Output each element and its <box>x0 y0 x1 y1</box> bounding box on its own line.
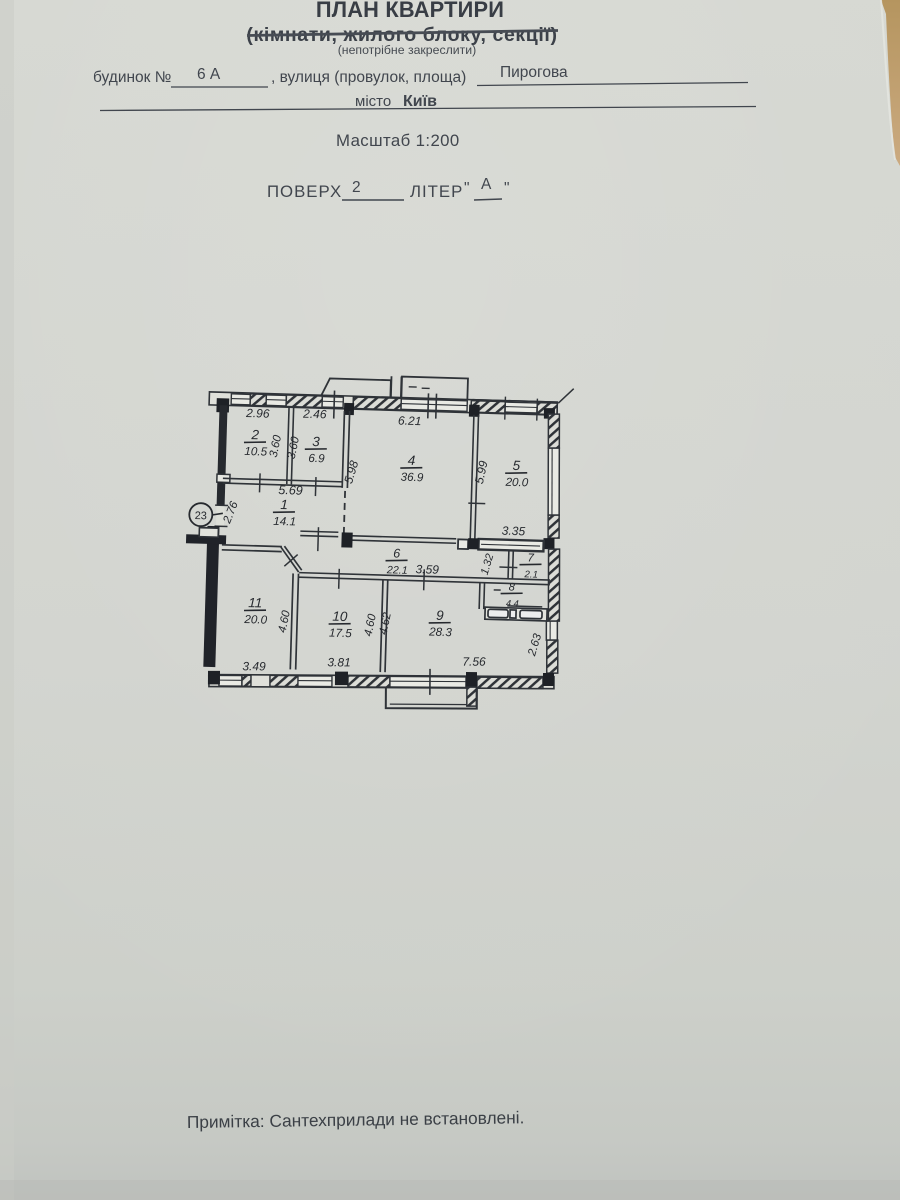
svg-text:20.0: 20.0 <box>504 476 529 490</box>
svg-text:Пирогова: Пирогова <box>500 64 568 81</box>
svg-text:2.46: 2.46 <box>302 407 327 422</box>
svg-text:": " <box>464 180 470 197</box>
svg-text:4: 4 <box>408 453 416 468</box>
svg-text:ЛІТЕР: ЛІТЕР <box>410 182 463 201</box>
svg-text:, вулиця (провулок, площа): , вулиця (провулок, площа) <box>271 69 466 86</box>
svg-text:будинок №: будинок № <box>93 69 172 86</box>
svg-text:5.69: 5.69 <box>278 483 303 498</box>
svg-text:ПОВЕРХ: ПОВЕРХ <box>267 182 342 201</box>
svg-text:2: 2 <box>250 427 259 442</box>
svg-text:": " <box>504 180 510 197</box>
svg-text:4.4: 4.4 <box>506 598 519 608</box>
svg-text:3.59: 3.59 <box>415 562 439 577</box>
svg-text:6: 6 <box>393 546 400 560</box>
svg-text:9: 9 <box>436 608 444 623</box>
svg-text:10: 10 <box>332 609 348 624</box>
svg-text:2.96: 2.96 <box>245 406 270 421</box>
svg-text:7: 7 <box>527 552 534 564</box>
svg-text:3: 3 <box>312 434 320 449</box>
svg-text:3.35: 3.35 <box>502 524 526 539</box>
svg-text:6.21: 6.21 <box>398 413 422 428</box>
svg-text:2.1: 2.1 <box>523 569 538 580</box>
svg-text:10.5: 10.5 <box>244 445 268 459</box>
svg-text:11: 11 <box>248 595 262 610</box>
svg-text:3.49: 3.49 <box>242 659 266 673</box>
svg-text:3.81: 3.81 <box>327 655 350 669</box>
svg-text:22.1: 22.1 <box>386 564 408 577</box>
svg-text:28.3: 28.3 <box>428 625 453 639</box>
svg-text:(непотрібне закреслити): (непотрібне закреслити) <box>338 43 477 57</box>
svg-text:Київ: Київ <box>403 93 437 110</box>
svg-text:2: 2 <box>352 179 361 196</box>
svg-text:6 А: 6 А <box>197 66 221 83</box>
svg-text:місто: місто <box>355 93 391 110</box>
svg-text:А: А <box>481 176 492 193</box>
svg-text:36.9: 36.9 <box>400 471 424 485</box>
svg-text:7.56: 7.56 <box>462 655 486 669</box>
svg-text:14.1: 14.1 <box>273 515 296 529</box>
svg-text:Масштаб 1:200: Масштаб 1:200 <box>336 131 460 150</box>
svg-text:17.5: 17.5 <box>329 627 353 641</box>
svg-text:5: 5 <box>512 458 520 473</box>
svg-text:20.0: 20.0 <box>243 613 268 627</box>
svg-text:6.9: 6.9 <box>308 452 325 465</box>
svg-text:1: 1 <box>280 497 288 512</box>
svg-text:ПЛАН КВАРТИРИ: ПЛАН КВАРТИРИ <box>316 0 504 22</box>
svg-text:23: 23 <box>194 510 207 522</box>
